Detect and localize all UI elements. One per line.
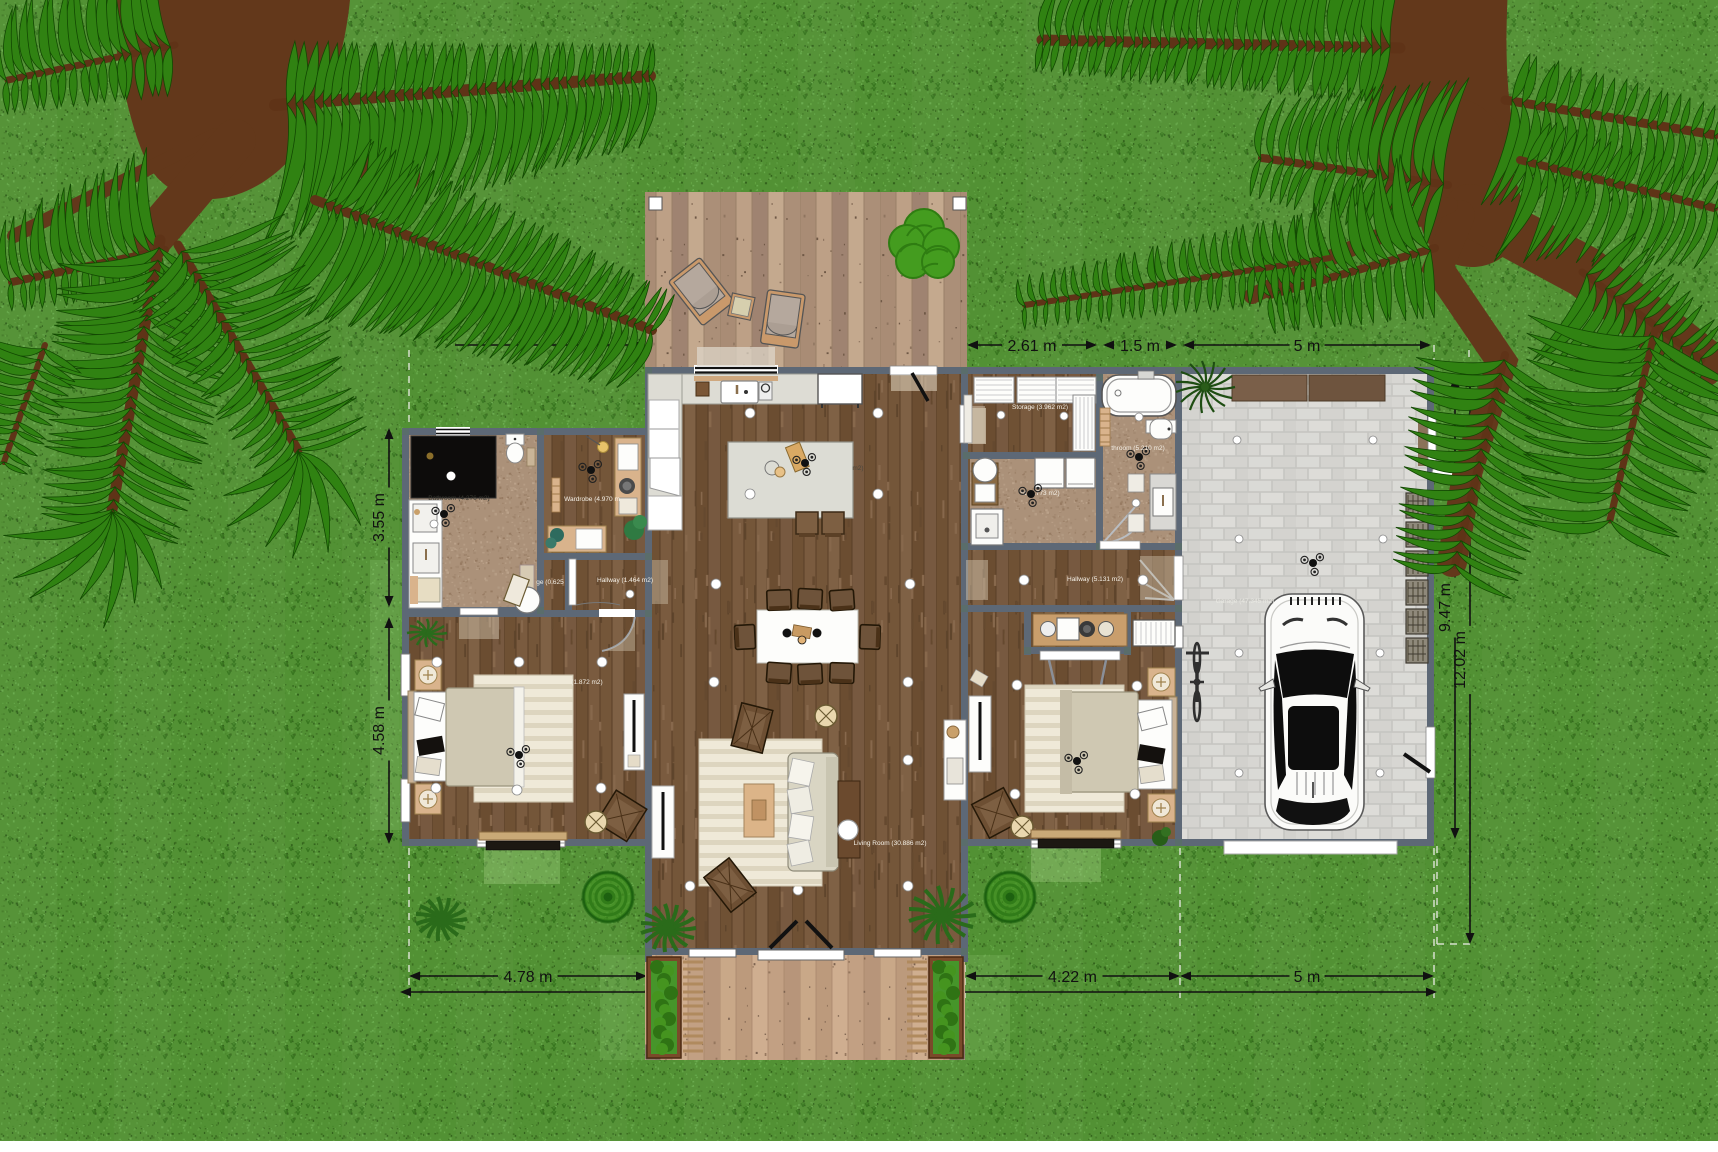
svg-text:throom (5.210 m2): throom (5.210 m2) — [1111, 445, 1164, 452]
svg-text:12.02 m: 12.02 m — [1452, 631, 1469, 689]
svg-text:ge (0.625: ge (0.625 — [536, 579, 564, 586]
svg-text:4.78 m: 4.78 m — [504, 969, 553, 986]
svg-text:Garage (47.345 m2): Garage (47.345 m2) — [1216, 598, 1275, 605]
svg-text:Storage (3.962 m2): Storage (3.962 m2) — [1012, 404, 1068, 411]
svg-text:3.55 m: 3.55 m — [371, 493, 388, 542]
svg-text:1.5 m: 1.5 m — [1120, 338, 1160, 355]
svg-text:m2): m2) — [852, 465, 863, 472]
svg-text:Wardrobe (4.970 m: Wardrobe (4.970 m — [564, 496, 620, 503]
svg-text:Hallway (5.131 m2): Hallway (5.131 m2) — [1067, 576, 1123, 583]
svg-text:5 m: 5 m — [1294, 338, 1321, 355]
svg-text:4.22 m: 4.22 m — [1048, 969, 1097, 986]
svg-text:5 m: 5 m — [1294, 969, 1321, 986]
svg-text:(1.872 m2): (1.872 m2) — [571, 679, 602, 686]
svg-text:4.58 m: 4.58 m — [371, 706, 388, 755]
svg-text:Hallway (1.464 m2): Hallway (1.464 m2) — [597, 577, 653, 584]
svg-text:Bathroom (4.276 m2): Bathroom (4.276 m2) — [428, 495, 489, 502]
svg-text:Living Room (30.886 m2): Living Room (30.886 m2) — [854, 840, 927, 847]
svg-text:2.61 m: 2.61 m — [1008, 338, 1057, 355]
svg-text:9.47 m: 9.47 m — [1437, 583, 1454, 632]
